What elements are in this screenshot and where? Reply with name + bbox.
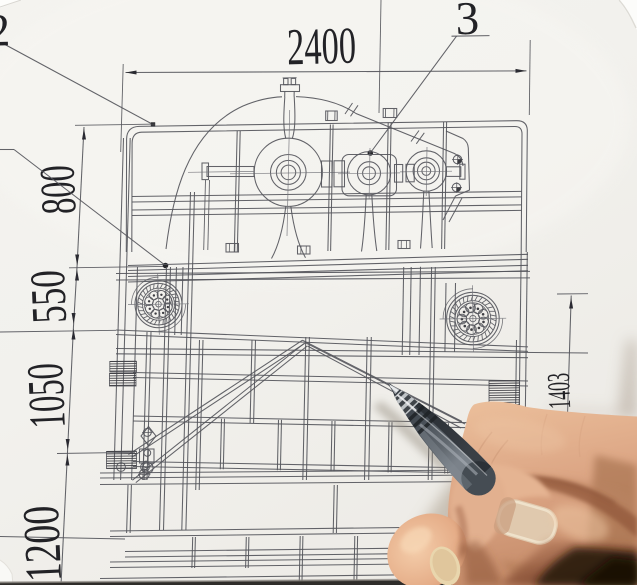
svg-text:3: 3 <box>455 0 480 45</box>
svg-text:2400: 2400 <box>286 18 356 77</box>
svg-text:1050: 1050 <box>17 362 77 429</box>
svg-text:1403: 1403 <box>540 372 578 410</box>
svg-text:2: 2 <box>0 4 11 56</box>
svg-text:550: 550 <box>19 269 77 324</box>
svg-text:1200: 1200 <box>13 505 73 583</box>
svg-text:800: 800 <box>28 164 86 215</box>
